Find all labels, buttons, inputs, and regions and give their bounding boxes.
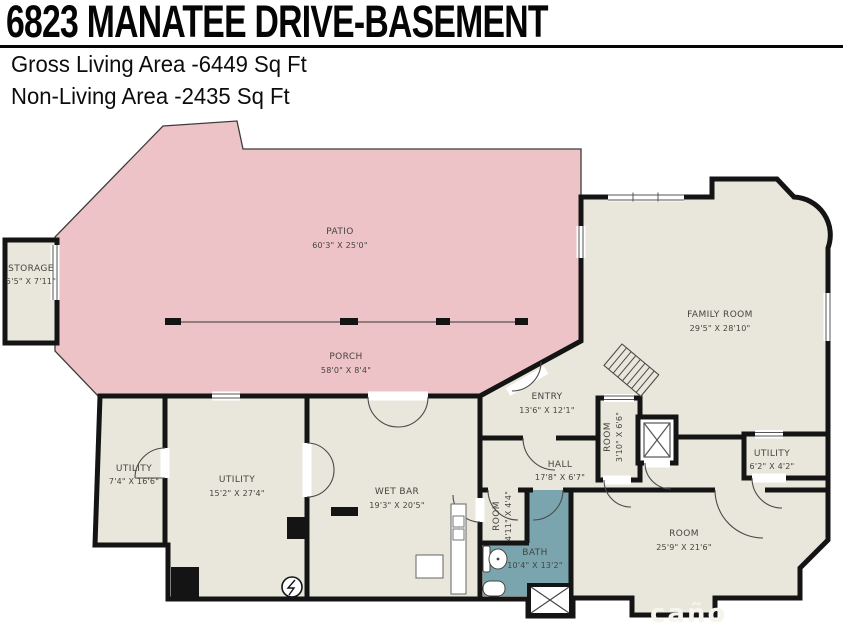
- svg-text:UTILITY: UTILITY: [116, 464, 152, 474]
- svg-text:FAMILY ROOM: FAMILY ROOM: [687, 310, 753, 320]
- svg-text:ROOM: ROOM: [669, 529, 699, 539]
- electrical-meter-icon: [282, 577, 302, 597]
- svg-text:WET BAR: WET BAR: [375, 487, 419, 497]
- svg-text:6'2" X 4'2": 6'2" X 4'2": [750, 462, 795, 471]
- svg-text:58'0" X 8'4": 58'0" X 8'4": [321, 366, 371, 375]
- svg-text:7'4" X 16'6": 7'4" X 16'6": [109, 477, 159, 486]
- svg-text:3'10" X 6'6": 3'10" X 6'6": [615, 412, 624, 462]
- svg-text:13'6" X 12'1": 13'6" X 12'1": [519, 406, 574, 415]
- svg-text:BATH: BATH: [522, 548, 548, 558]
- svg-text:60'3" X 25'0": 60'3" X 25'0": [312, 241, 367, 250]
- storage-room: [5, 240, 57, 343]
- svg-text:4'11" X 4'4": 4'11" X 4'4": [504, 491, 513, 541]
- svg-text:UTILITY: UTILITY: [754, 449, 790, 459]
- sink-icon: [483, 581, 505, 596]
- svg-text:10'4" X 13'2": 10'4" X 13'2": [507, 561, 562, 570]
- svg-text:PORCH: PORCH: [329, 352, 362, 362]
- wall-pilaster: [287, 517, 305, 539]
- watermark: caño: [650, 599, 727, 629]
- svg-text:UTILITY: UTILITY: [219, 475, 255, 485]
- elevator-icon: [638, 417, 676, 463]
- svg-text:19'3" X 20'5": 19'3" X 20'5": [369, 501, 424, 510]
- svg-text:HALL: HALL: [548, 460, 573, 470]
- svg-text:ENTRY: ENTRY: [531, 392, 562, 402]
- shower-icon: [529, 585, 571, 615]
- floor-plan-drawing: STORAGE 5'5" X 7'11" PATIO 60'3" X 25'0"…: [0, 0, 843, 632]
- svg-text:5'5" X 7'11": 5'5" X 7'11": [6, 277, 56, 286]
- svg-text:PATIO: PATIO: [326, 227, 354, 237]
- svg-text:STORAGE: STORAGE: [8, 264, 54, 274]
- svg-text:15'2" X 27'4": 15'2" X 27'4": [209, 489, 264, 498]
- svg-text:ROOM: ROOM: [603, 422, 613, 452]
- svg-text:29'5" X 28'10": 29'5" X 28'10": [690, 324, 751, 333]
- svg-text:ROOM: ROOM: [492, 501, 502, 531]
- wet-bar-island: [331, 507, 358, 516]
- svg-text:17'8" X 6'7": 17'8" X 6'7": [535, 473, 585, 482]
- patio-porch-area: [55, 121, 581, 398]
- svg-text:25'9" X 21'6": 25'9" X 21'6": [656, 543, 711, 552]
- floor-plan-page: 6823 MANATEE DRIVE-BASEMENT Gross Living…: [0, 0, 843, 632]
- chimney-block: [171, 567, 199, 597]
